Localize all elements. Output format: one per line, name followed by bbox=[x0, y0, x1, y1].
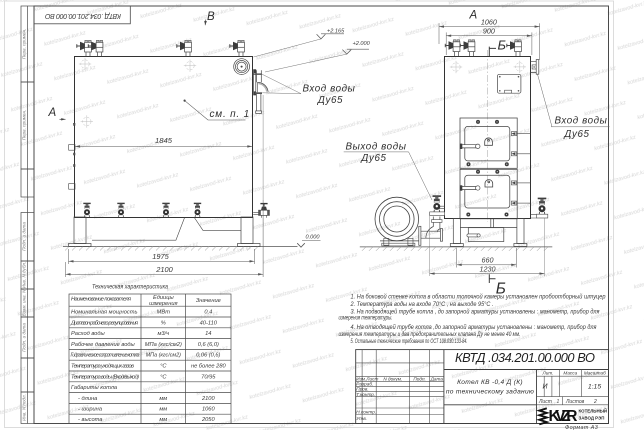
svg-text:А: А bbox=[48, 107, 57, 119]
svg-text:Лист: Лист bbox=[538, 399, 552, 405]
svg-text:КВТД .034.201.00.000 ВО: КВТД .034.201.00.000 ВО bbox=[455, 350, 595, 365]
svg-text:Наименование показателя: Наименование показателя bbox=[71, 297, 131, 303]
svg-text:мм: мм bbox=[159, 417, 167, 423]
svg-text:- ширина: - ширина bbox=[78, 407, 102, 413]
svg-text:по техническому заданию: по техническому заданию bbox=[446, 388, 534, 396]
svg-text:измерения температуры.: измерения температуры. bbox=[339, 315, 393, 322]
svg-text:КОТЕЛЬНЫЙ: КОТЕЛЬНЫЙ bbox=[579, 409, 608, 414]
svg-text:Рабочее давление воды: Рабочее давление воды bbox=[71, 342, 136, 348]
svg-text:А: А bbox=[469, 10, 478, 22]
svg-text:2100: 2100 bbox=[201, 396, 215, 402]
svg-text:В: В bbox=[207, 11, 215, 23]
svg-text:Взам. инв. N: Взам. инв. N bbox=[22, 289, 27, 316]
svg-text:Ду65: Ду65 bbox=[360, 153, 386, 164]
svg-text:Перв. примен.: Перв. примен. bbox=[22, 29, 27, 60]
svg-text:- длина: - длина bbox=[78, 396, 97, 402]
svg-text:1:15: 1:15 bbox=[588, 384, 601, 391]
svg-text:не более 280: не более 280 bbox=[191, 364, 227, 370]
svg-text:Ду65: Ду65 bbox=[563, 129, 589, 140]
svg-text:Выход воды: Выход воды bbox=[345, 142, 406, 153]
svg-text:Диапазон рабочего регулировани: Диапазон рабочего регулирования bbox=[70, 320, 138, 326]
svg-text:KVZR: KVZR bbox=[549, 408, 578, 425]
svg-text:Масса: Масса bbox=[563, 371, 577, 376]
svg-text:1845: 1845 bbox=[155, 136, 173, 145]
svg-text:2050: 2050 bbox=[201, 417, 215, 423]
svg-text:Дата: Дата bbox=[430, 376, 444, 381]
svg-text:5. Остальные технические треб: 5. Остальные технические требования по О… bbox=[351, 338, 468, 345]
svg-text:Перв. примен.: Перв. примен. bbox=[22, 110, 27, 141]
svg-text:Гидравлическое сопротивление к: Гидравлическое сопротивление котла bbox=[71, 353, 140, 359]
svg-text:660: 660 bbox=[482, 256, 494, 265]
svg-text:40-110: 40-110 bbox=[200, 320, 218, 326]
svg-text:1975: 1975 bbox=[152, 252, 169, 261]
svg-text:- высота: - высота bbox=[78, 417, 102, 423]
svg-text:1: 1 bbox=[557, 399, 560, 405]
svg-text:1230: 1230 bbox=[480, 264, 496, 273]
svg-text:Листов: Листов bbox=[565, 399, 585, 405]
svg-text:Температура воды (Вход/выход): Температура воды (Вход/выход) bbox=[71, 374, 139, 380]
svg-text:°С: °С bbox=[160, 374, 167, 380]
svg-text:Техническая характеристика: Техническая характеристика bbox=[92, 284, 168, 291]
svg-text:мм: мм bbox=[159, 396, 167, 402]
svg-text:2: 2 bbox=[593, 399, 597, 405]
svg-text:4. На отводящей трубе котла ,: 4. На отводящей трубе котла ,до запорной… bbox=[351, 324, 598, 331]
svg-text:Вход воды: Вход воды bbox=[555, 116, 608, 127]
svg-text:N докум.: N докум. bbox=[383, 376, 402, 381]
svg-text:м3/ч: м3/ч bbox=[158, 331, 170, 337]
svg-text:Утв.: Утв. bbox=[356, 416, 367, 421]
svg-text:2100: 2100 bbox=[155, 265, 173, 274]
svg-text:1060: 1060 bbox=[202, 407, 215, 413]
svg-text:Котел КВ -0,4 Д (К): Котел КВ -0,4 Д (К) bbox=[457, 379, 523, 386]
svg-text:МВт: МВт bbox=[157, 310, 171, 316]
svg-text:Лит.: Лит. bbox=[542, 371, 554, 376]
svg-text:ЗАВОД РЭП: ЗАВОД РЭП bbox=[579, 415, 605, 420]
svg-text:Подп. и дата: Подп. и дата bbox=[22, 222, 27, 251]
svg-text:МПа (кгс/см2): МПа (кгс/см2) bbox=[146, 353, 181, 359]
svg-text:измерения температуры и два пр: измерения температуры и два предохраните… bbox=[339, 331, 521, 338]
svg-text:14: 14 bbox=[205, 331, 211, 337]
svg-text:Инв. N дубл.: Инв. N дубл. bbox=[22, 262, 27, 289]
svg-text:см. п. 1: см. п. 1 bbox=[210, 109, 250, 120]
svg-text:0.000: 0.000 bbox=[306, 235, 321, 241]
svg-text:Габариты котла: Габариты котла bbox=[71, 385, 117, 391]
svg-text:Т.контр.: Т.контр. bbox=[356, 392, 375, 397]
svg-text:900: 900 bbox=[483, 27, 495, 36]
svg-text:Расход воды: Расход воды bbox=[71, 331, 105, 337]
svg-text:Б: Б bbox=[498, 38, 507, 53]
svg-text:Подп.: Подп. bbox=[413, 376, 425, 381]
svg-text:Значение: Значение bbox=[196, 298, 221, 304]
svg-text:Вход воды: Вход воды bbox=[303, 84, 356, 95]
svg-text:°С: °С bbox=[160, 364, 167, 370]
svg-text:%: % bbox=[161, 320, 166, 326]
svg-text:Номинальная мощность: Номинальная мощность bbox=[71, 310, 137, 316]
svg-text:0,4: 0,4 bbox=[204, 310, 212, 316]
svg-text:2. Температура воды на входе: 2. Температура воды на входе 70°С , на в… bbox=[350, 301, 494, 308]
svg-text:+2.000: +2.000 bbox=[353, 41, 371, 47]
svg-text:измерения: измерения bbox=[149, 301, 177, 307]
svg-text:Н.контр.: Н.контр. bbox=[356, 409, 376, 414]
svg-text:Масштаб: Масштаб bbox=[584, 371, 606, 376]
svg-text:мм: мм bbox=[159, 407, 167, 413]
svg-text:0,06 (0,6): 0,06 (0,6) bbox=[196, 353, 220, 359]
svg-text:КВТД .034.201.00.000 ВО: КВТД .034.201.00.000 ВО bbox=[44, 12, 121, 19]
svg-text:Подп. и дата: Подп. и дата bbox=[22, 323, 27, 352]
svg-text:Инв. N подл.: Инв. N подл. bbox=[22, 394, 27, 421]
svg-text:Формат А3: Формат А3 bbox=[565, 425, 598, 430]
svg-text:70/95: 70/95 bbox=[201, 374, 216, 380]
svg-text:1060: 1060 bbox=[481, 18, 497, 27]
svg-text:1. На боковой стенке котла в: 1. На боковой стенке котла в области топ… bbox=[351, 293, 607, 300]
svg-text:МПа (кгс/см2): МПа (кгс/см2) bbox=[145, 342, 182, 348]
svg-text:0,6 (6,0): 0,6 (6,0) bbox=[198, 342, 219, 348]
svg-text:Температура уходящих газов: Температура уходящих газов bbox=[71, 364, 134, 370]
svg-text:Ду65: Ду65 bbox=[317, 95, 343, 106]
